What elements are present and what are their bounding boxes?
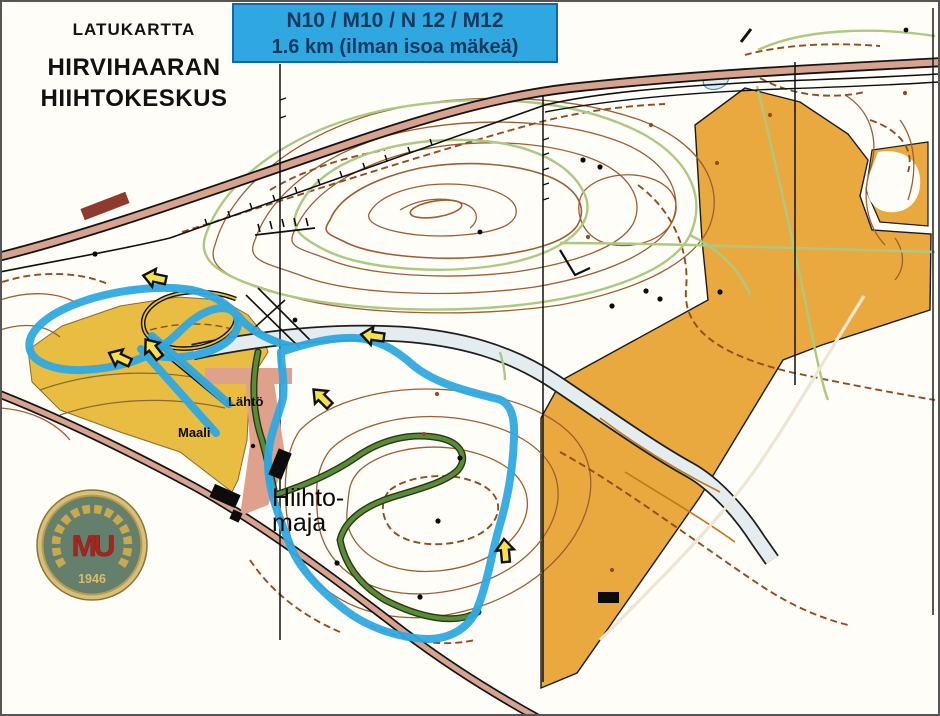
map-header: LATUKARTTA HIRVIHAARAN HIIHTOKESKUS — [8, 20, 260, 114]
hut-label-line2: maja — [272, 509, 326, 537]
course-banner: N10 / M10 / N 12 / M12 1.6 km (ilman iso… — [232, 3, 558, 63]
page-title-line2: HIIHTOKESKUS — [8, 83, 260, 114]
club-monogram: MU — [72, 530, 114, 563]
page-title-line1: HIRVIHAARAN — [8, 52, 260, 83]
club-year: 1946 — [78, 572, 106, 586]
map-type-label: LATUKARTTA — [8, 20, 260, 40]
course-classes-label: N10 / M10 / N 12 / M12 — [286, 7, 503, 34]
finish-label: Maali — [178, 425, 211, 440]
ski-trail-map-page: LATUKARTTA HIRVIHAARAN HIIHTOKESKUS N10 … — [0, 0, 940, 716]
start-label: Lähtö — [228, 394, 263, 409]
course-distance-label: 1.6 km (ilman isoa mäkeä) — [272, 34, 519, 60]
hut-label-line1: Hiihto- — [272, 484, 344, 512]
club-logo: MU 1946 — [37, 490, 147, 600]
